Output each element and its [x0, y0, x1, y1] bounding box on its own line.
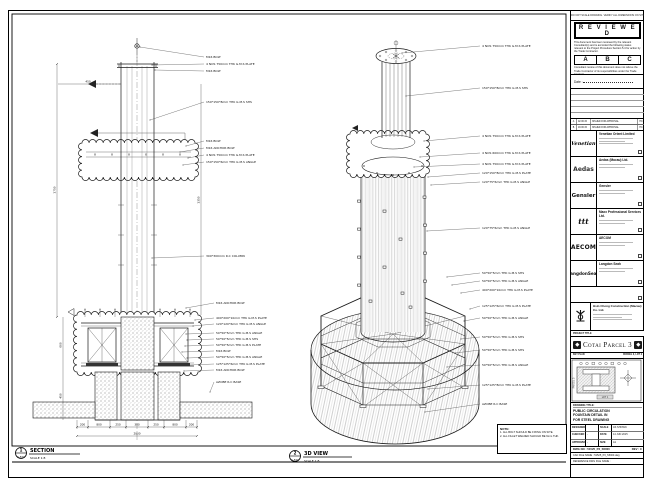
callout-label: 150*150*8mm THK G.M.S SHS — [206, 100, 252, 104]
callout-label: 120*75*6mm THK G.M.S ANGLE — [482, 180, 530, 184]
top-bolt-symbol — [135, 38, 139, 62]
title-block: DO NOT SCALE DRAWING. VERIFY ALL DIMENSI… — [570, 11, 643, 477]
dim-label: 250 — [115, 423, 121, 427]
field-label: APPROVED — [571, 440, 586, 447]
callout-label: M16 BOLT — [206, 69, 221, 73]
drawing-area: 200 800 250 300 250 800 200 2800 1750 60… — [9, 11, 569, 477]
section-view: 200 800 250 300 250 800 200 2800 1750 60… — [33, 38, 267, 440]
field-value: - — [586, 432, 599, 439]
field-label: SCALE — [599, 425, 612, 432]
aecom-logo: AECOM — [571, 244, 596, 251]
bubble-sheet: S-500 — [291, 458, 299, 462]
dim-label: 200 — [189, 423, 195, 427]
reviewed-title: R E V I E W E D — [574, 22, 641, 39]
callout-label: M16 ANCHOR BOLT — [216, 368, 245, 372]
callout-label: 125*125*8mm THK G.M.S PLATE — [482, 383, 531, 387]
consultant-name: Venetian Orient Limited — [599, 133, 642, 137]
column-lines — [117, 62, 158, 317]
iso-collar — [347, 125, 430, 178]
bubble-number: 1 — [20, 448, 23, 453]
aedas-logo: Aedas — [573, 166, 594, 173]
callout-label: 50*50*5mm THK G.M.S SHS — [482, 335, 524, 339]
field-label: DATE — [599, 432, 612, 439]
callout-label: 50*50*5mm THK G.M.S ANGLE — [216, 355, 262, 359]
callout-label: 4 NOS 750mm THK G.M.S PLATE — [482, 162, 531, 166]
consultant-row: Aedas Aedas (Macau) Ltd. — [571, 157, 644, 183]
key-plan-left-label: PARCEL 5 — [573, 377, 576, 388]
reviewed-body2: Consultant review of this document does … — [574, 66, 641, 75]
bubble-sheet: S-500 — [17, 455, 25, 459]
field-value: A1 — [612, 440, 644, 447]
contractor-name: Hsin Chong Construction (Macau) Co. Ltd. — [593, 305, 642, 313]
key-plan-parcel-label: PARCEL 3, LOT 2 — [623, 353, 642, 358]
callout-label: M16 BOLT — [206, 139, 221, 143]
callout-label: M16 ANCHOR BOLT — [216, 301, 245, 305]
callout-label: 300*300mm R.C COLUMN — [206, 254, 245, 258]
consultant-name: AECOM — [599, 237, 642, 241]
callout-label: 400*200*10mm THK G.M.S PLATE — [216, 316, 267, 320]
title-block-fields: DESIGNED SCALE AS SHOWN CHECKED - DATE 1… — [571, 425, 644, 447]
rev-by: HC — [637, 119, 644, 124]
consultant-name: Gensler — [599, 185, 642, 189]
view-scale: SCALE 1:8 — [304, 459, 319, 463]
venetian-logo: Venetian — [571, 141, 596, 147]
key-plan-map: PARCEL 5 LOT 1 — [571, 359, 644, 403]
iso-view-label: 2 S-500 3D VIEW SCALE 1:8 — [290, 451, 353, 464]
dim-label: 450 — [85, 80, 91, 84]
dim-label: 600 — [59, 342, 63, 348]
reviewed-status-options: A B C — [574, 55, 641, 65]
weld-symbol-icon — [68, 309, 74, 316]
callout-label: 50*50*5mm THK G.M.S SHS — [482, 271, 524, 275]
callout-label: 4 NOS 750mm THK G.M.S PLATE — [482, 44, 531, 48]
consultant-name: Aedas (Macau) Ltd. — [599, 159, 642, 163]
field-value: AS SHOWN — [612, 425, 644, 432]
title-block-top-strip: DO NOT SCALE DRAWING. VERIFY ALL DIMENSI… — [571, 11, 644, 21]
emblem-icon — [573, 341, 581, 349]
checkbox[interactable] — [638, 280, 642, 284]
callout-label: AZOBE R.C BASE — [216, 380, 241, 384]
field-value: - — [586, 440, 599, 447]
notes-box: NOTE: 1. ALL BOLT SHOULD BE FIXING ON SI… — [497, 424, 567, 454]
dim-label: 200 — [80, 423, 86, 427]
detail-flag-icon — [88, 80, 185, 140]
drawing-sheet: 200 800 250 300 250 800 200 2800 1750 60… — [0, 0, 650, 488]
callout-label: 50*50*5mm THK G.M.S PLATE — [216, 343, 261, 347]
rev-desc: ISSUED FOR APPROVAL — [591, 119, 637, 124]
callout-label: 4 NOS 750mm THK G.M.S PLATE — [206, 62, 255, 66]
dim-label: 1750 — [53, 186, 57, 193]
date-fill-in-line[interactable] — [583, 78, 633, 83]
field-label: DESIGNED — [571, 425, 586, 432]
callout-label: 50*50*5mm THK G.M.S ANGLE — [482, 316, 528, 320]
callout-label: 4 NOS 750mm THK G.M.S PLATE — [206, 153, 255, 157]
callout-label: 50*50*5mm THK G.M.S SHS — [216, 337, 258, 341]
callout-label: 120*150*8mm THK G.M.S PLATE — [482, 171, 531, 175]
callout-label: 4 NOS 750mm THK G.M.S PLATE — [482, 134, 531, 138]
field-value — [586, 425, 599, 432]
dim-label: 250 — [153, 423, 159, 427]
callout-label: 125*125*6mm THK G.M.S PLATE — [216, 362, 265, 366]
ttt-logo: ttt — [578, 217, 588, 226]
callout-label: M16 BOLT — [216, 349, 231, 353]
dim-label: 800 — [96, 423, 102, 427]
reviewed-date-row: Date : — [571, 75, 644, 89]
callout-label: 50*50*5mm THK G.M.S ANGLE — [482, 363, 528, 367]
callout-label: 50*50*5mm THK G.M.S SHS — [482, 348, 524, 352]
callout-label: 125*125*6mm THK G.M.S PLATE — [482, 304, 531, 308]
checkbox[interactable] — [638, 254, 642, 258]
field-value: 14 JUN 2015 — [612, 432, 644, 439]
project-title: Cotai Parcel 3 — [583, 341, 632, 349]
rev-date: 02.06.15 — [577, 119, 591, 124]
callout-label: 400*200*10mm THK G.M.S PLATE — [482, 288, 533, 292]
consultant-row: ttt Maxx Professional Services Ltd. — [571, 209, 644, 235]
bubble-number: 2 — [294, 451, 297, 456]
dim-label: 800 — [172, 423, 178, 427]
checkbox[interactable] — [638, 202, 642, 206]
consultant-row: LangdonSeah Langdon Seah — [571, 261, 644, 287]
drawing-title-line: FOR STEEL DRAWING — [573, 418, 642, 422]
rock-collar-outline — [78, 140, 198, 181]
callout-label: M16 ANCHOR BOLT — [206, 146, 235, 150]
drawing-title-label: DRAWING TITLE: — [573, 404, 642, 408]
iso-shaft — [376, 40, 416, 138]
view-scale: SCALE 1:8 — [30, 456, 45, 460]
consultant-row: Venetian Venetian Orient Limited — [571, 131, 644, 157]
section-view-label: 1 S-500 SECTION SCALE 1:8 — [16, 448, 81, 461]
reviewed-stamp: R E V I E W E D This document has been r… — [571, 21, 644, 75]
rev-label: REV : C — [632, 447, 642, 452]
iso-view: 4 NOS 750mm THK G.M.S PLATE 150*150*8mm … — [311, 40, 533, 444]
dwg-no: DWG NO : 51525_P3_S5000 — [573, 447, 610, 452]
langdonseah-logo: LangdonSeah — [571, 271, 597, 276]
callout-label: 50*50*5mm THK G.M.S ANGLE — [216, 331, 262, 335]
callout-label: 150*150*8mm THK G.M.S SHS — [482, 86, 528, 90]
iso-column — [358, 176, 427, 342]
callout-label: 50*50*5mm THK G.M.S ANGLE — [482, 279, 528, 283]
status-option-a[interactable]: A — [575, 56, 597, 64]
consultant-row: AECOM AECOM — [571, 235, 644, 261]
revision-table-empty — [571, 89, 644, 119]
callout-label: 4 NOS 600mm THK G.M.S PLATE — [482, 151, 531, 155]
consultant-name: Maxx Professional Services Ltd. — [599, 211, 642, 219]
view-title: SECTION — [30, 448, 54, 454]
note-line: 2. ALL FILLET WELDED SHOULD BE 6mm THK. — [500, 435, 564, 439]
contractor-logo — [574, 308, 587, 326]
dim-label: 1350 — [197, 196, 201, 203]
consultant-name: Langdon Seah — [599, 263, 642, 267]
revision-rows: A 02.06.15 ISSUED FOR APPROVAL HC B 18.0… — [571, 119, 644, 131]
project-title-band: Cotai Parcel 3 — [571, 337, 644, 353]
callout-label: 150*150*6mm THK G.M.S ANGLE — [206, 160, 256, 164]
dim-label: 300 — [134, 423, 140, 427]
status-option-c[interactable]: C — [619, 56, 640, 64]
contractor-row: Hsin Chong Construction (Macau) Co. Ltd. — [571, 303, 644, 331]
callout-label: AZOBE R.C BASE — [482, 402, 507, 406]
checkbox[interactable] — [638, 228, 642, 232]
date-label: Date : — [574, 80, 583, 84]
gensler-logo: Gensler — [572, 193, 596, 199]
drawing-title-box: DRAWING TITLE: PUBLIC CIRCULATION FOUNTA… — [571, 403, 644, 425]
consultant-row: Gensler Gensler — [571, 183, 644, 209]
field-label: SIZE — [599, 440, 612, 447]
key-plan-bottom-label: LOT 1 — [602, 396, 609, 399]
key-plan-label: KEY PLAN — [573, 353, 585, 358]
field-label: CHECKED — [571, 432, 586, 439]
callout-label: 120*75*6mm THK G.M.S ANGLE — [482, 226, 530, 230]
dim-label: 450 — [59, 393, 63, 399]
view-title: 3D VIEW — [304, 451, 329, 457]
dim-total-label: 2800 — [133, 432, 140, 436]
checkbox[interactable] — [638, 176, 642, 180]
checkbox[interactable] — [638, 150, 642, 154]
emblem-icon — [634, 341, 642, 349]
checkbox[interactable] — [638, 296, 642, 300]
detail-flag-icon — [352, 125, 358, 131]
callout-label: 120*120*6mm THK G.M.S ANGLE — [216, 322, 266, 326]
callout-label: M16 BOLT — [206, 55, 221, 59]
reviewed-body: This document has been reviewed by the r… — [574, 41, 641, 54]
title-block-tail — [571, 465, 644, 477]
consultant-list: Venetian Venetian Orient Limited Aedas A… — [571, 131, 644, 287]
empty-consultant-row — [571, 287, 644, 303]
status-option-b[interactable]: B — [597, 56, 619, 64]
